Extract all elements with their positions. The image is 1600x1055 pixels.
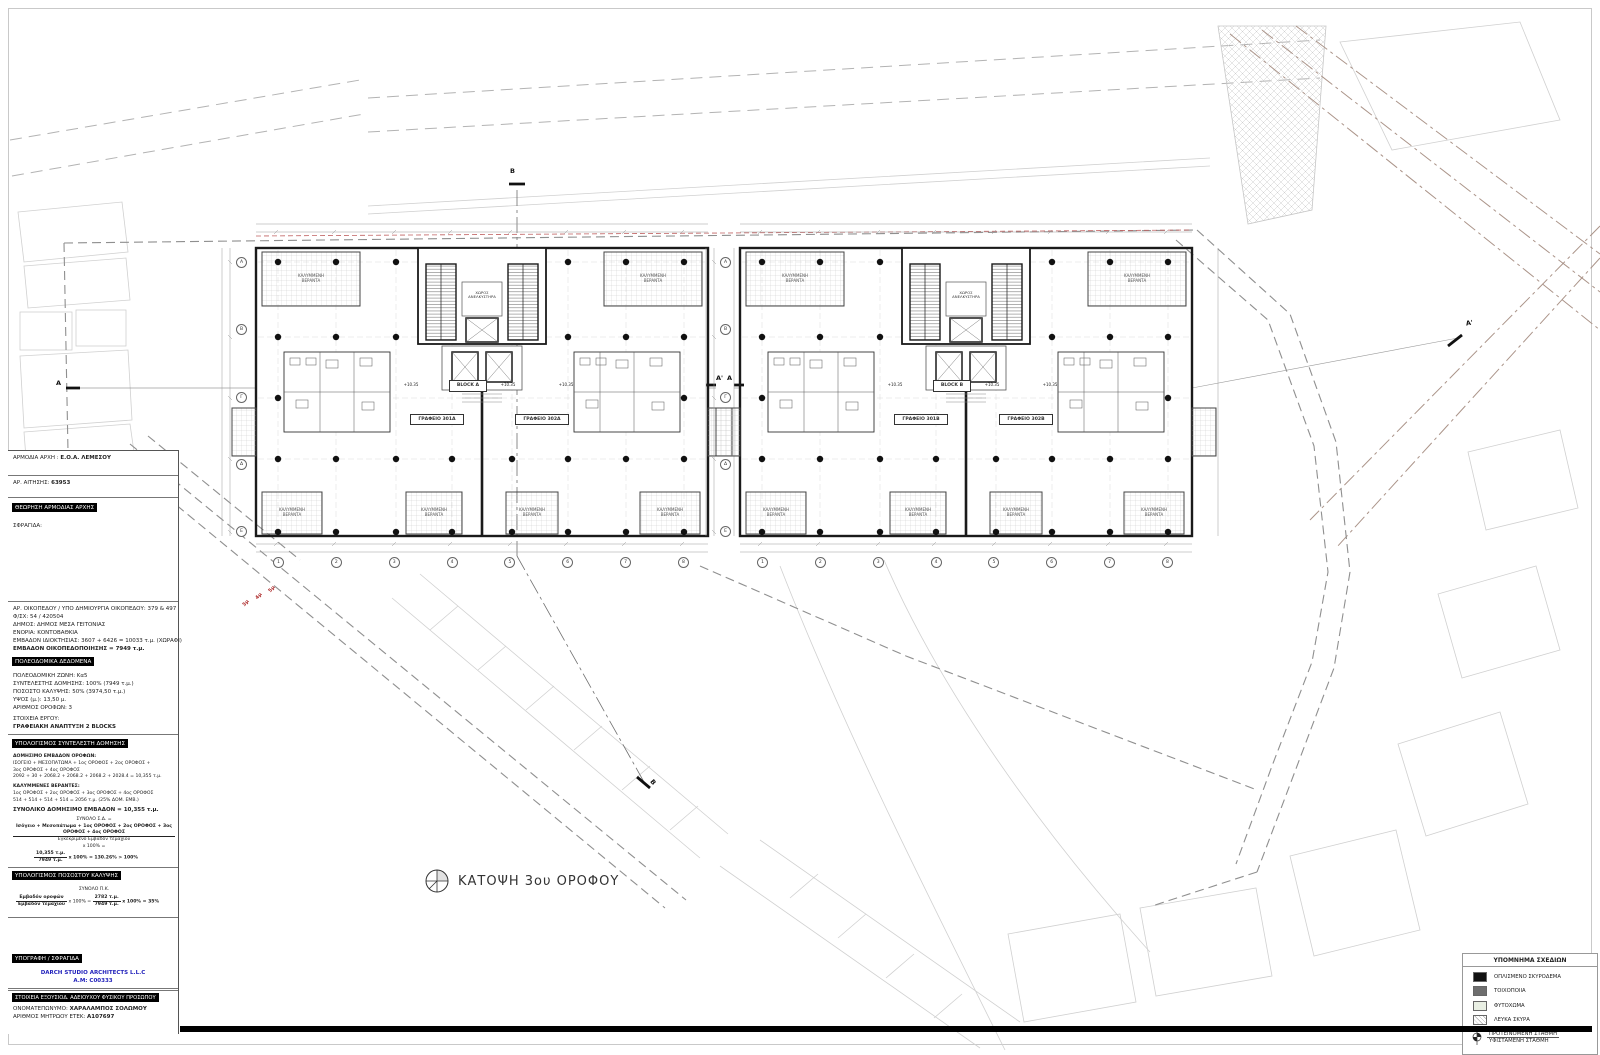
plot-line: ΑΡ. ΟΙΚΟΠΕΔΟΥ / ΥΠΟ ΔΗΜΙΟΥΡΓΙΑ ΟΙΚΟΠΕΔΟΥ… bbox=[13, 606, 175, 613]
grid-bubble: Β bbox=[236, 324, 247, 335]
far-fraction-denominator: Εγκεκριμένο Εμβαδόν τεμαχίου bbox=[13, 837, 175, 843]
drawing-sheet: ΑΡΜΟΔΙΑ ΑΡΧΗ : Ε.Ο.Α. ΛΕΜΕΣΟΥ ΑΡ. ΑΙΤΗΣΗ… bbox=[0, 0, 1600, 1053]
plot-line: ΕΜΒΑΔΟΝ ΟΙΚΟΠΕΔΟΠΟΙΗΣΗΣ = 7949 τ.μ. bbox=[13, 646, 175, 653]
licensee-header: ΣΤΟΙΧΕΙΑ ΕΞΟΥΣΙΟΔ. ΑΔΕΙΟΥΧΟΥ ΦΥΣΙΚΟΥ ΠΡΟ… bbox=[12, 993, 159, 1002]
drawing-title: ΚΑΤΟΨΗ 3ου ΟΡΟΦΟΥ bbox=[458, 874, 619, 889]
veranda-label: ΚΑΛΥΜΜΕΝΗΒΕΡΑΝΤΑ bbox=[291, 274, 331, 283]
coverage-rest: x 100% = 35% bbox=[122, 900, 159, 905]
far-line: 2092 + 30 + 2068.2 + 2068.2 + 2068.2 + 2… bbox=[13, 774, 175, 780]
grid-bubble: 4 bbox=[931, 557, 942, 568]
coverage-formula: Εμβαδόν οροφώνΕμβαδόν τεμαχίου x 100% = … bbox=[16, 895, 175, 907]
section-a-prime-marker: A' bbox=[716, 375, 723, 382]
block-a-label: BLOCK A bbox=[449, 380, 487, 392]
lift-room-label: ΧΩΡΟΣΑΝΕΛΚΥΣΤΗΡΑ bbox=[946, 291, 986, 300]
plot-line: ΕΜΒΑΔΟΝ ΙΔΙΟΚΤΗΣΙΑΣ: 3607 + 6426 = 10033… bbox=[13, 638, 175, 645]
grid-bubble: Α bbox=[720, 257, 731, 268]
application-label: ΑΡ. ΑΙΤΗΣΗΣ: bbox=[13, 480, 49, 486]
topsoil-swatch-icon bbox=[1473, 1001, 1487, 1011]
legend-item-label: ΤΟΙΧΟΠΟΙΙΑ bbox=[1494, 988, 1526, 994]
grid-bubble: 2 bbox=[815, 557, 826, 568]
grid-bubble: 6 bbox=[1046, 557, 1057, 568]
signature-header: ΥΠΟΓΡΑΦΗ / ΣΦΡΑΓΙΔΑ bbox=[12, 954, 82, 963]
section-a-marker: A bbox=[727, 375, 732, 382]
grid-bubbles-block-b: 12345678 bbox=[757, 557, 1173, 568]
plot-line: Φ/ΣΧ: 54 / 420504 bbox=[13, 614, 175, 621]
licensee-name-label: ΟΝΟΜΑΤΕΠΩΝΥΜΟ: bbox=[13, 1006, 68, 1012]
veranda-label: ΚΑΛΥΜΜΕΝΗΒΕΡΑΝΤΑ bbox=[414, 508, 454, 517]
lift-room-label: ΧΩΡΟΣΑΝΕΛΚΥΣΤΗΡΑ bbox=[462, 291, 502, 300]
legend-item: ΟΠΛΙΣΜΕΝΟ ΣΚΥΡΟΔΕΜΑ bbox=[1473, 972, 1597, 982]
licensee-reg: Α107697 bbox=[87, 1014, 114, 1020]
sd-line: ΣΥΝΟΛΟ Σ.Δ. = bbox=[13, 817, 175, 823]
architect-reg: A.M: C00333 bbox=[8, 978, 178, 985]
office-302b-label: ΓΡΑΦΕΙΟ 302Β bbox=[999, 414, 1053, 425]
far-result-num: 10,355 τ.μ. bbox=[34, 851, 67, 858]
grid-bubble: Γ bbox=[236, 392, 247, 403]
coverage-total: ΣΥΝΟΛΟ Π.Κ. bbox=[13, 887, 175, 893]
zoning-line: ΠΟΛΕΟΔΟΜΙΚΗ ΖΩΝΗ: Κα5 bbox=[13, 673, 175, 680]
total-area-line: ΣΥΝΟΛΙΚΟ ΔΟΜΗΣΙΜΟ ΕΜΒΑΔΟΝ = 10,355 τ.μ. bbox=[13, 807, 175, 814]
grid-bubble: Α bbox=[236, 257, 247, 268]
grid-bubble: Δ bbox=[720, 459, 731, 470]
plot-line: ΔΗΜΟΣ: ΔΗΜΟΣ ΜΕΣΑ ΓΕΙΤΟΝΙΑΣ bbox=[13, 622, 175, 629]
authority-value: Ε.Ο.Α. ΛΕΜΕΣΟΥ bbox=[60, 455, 111, 461]
far-header: ΥΠΟΛΟΓΙΣΜΟΣ ΣΥΝΤΕΛΕΣΤΗ ΔΟΜΗΣΗΣ bbox=[12, 739, 128, 748]
grid-bubble: 7 bbox=[620, 557, 631, 568]
coverage-num2: 2782 τ.μ. bbox=[93, 895, 121, 902]
legend-item-label: ΛΕΥΚΑ ΣΚΥΡΑ bbox=[1494, 1017, 1530, 1023]
grid-letters-block-a: ΑΒΓΔΕ bbox=[236, 257, 247, 537]
level-existing-label: ΥΦΙΣΤΑΜΕΝΗ ΣΤΑΘΜΗ bbox=[1487, 1038, 1559, 1044]
legend-header: ΥΠΟΜΝΗΜΑ ΣΧΕΔΙΩΝ bbox=[1463, 954, 1597, 967]
veranda-label: ΚΑΛΥΜΜΕΝΗΒΕΡΑΝΤΑ bbox=[650, 508, 690, 517]
verandas-line: 1ος ΟΡΟΦΟΣ + 2ος ΟΡΟΦΟΣ + 3ος ΟΡΟΦΟΣ + 4… bbox=[13, 791, 175, 797]
verandas-sub: ΚΑΛΥΜΜΕΝΕΣ ΒΕΡΑΝΤΕΣ: bbox=[13, 784, 175, 790]
concrete-swatch-icon bbox=[1473, 972, 1487, 982]
grid-bubble: Ε bbox=[236, 526, 247, 537]
architect-name: DARCH STUDIO ARCHITECTS L.L.C bbox=[8, 970, 178, 977]
level-mark: +10.35 bbox=[495, 383, 521, 388]
authority-label: ΑΡΜΟΔΙΑ ΑΡΧΗ : bbox=[13, 455, 59, 461]
licensee-reg-row: ΑΡΙΘΜΟΣ ΜΗΤΡΩΟΥ ΕΤΕΚ: Α107697 bbox=[13, 1014, 175, 1021]
grid-bubble: 8 bbox=[1162, 557, 1173, 568]
grid-bubble: 3 bbox=[389, 557, 400, 568]
legend-item: ΤΟΙΧΟΠΟΙΙΑ bbox=[1473, 986, 1597, 996]
project-name: ΓΡΑΦΕΙΑΚΗ ΑΝΑΠΤΥΞΗ 2 BLOCKS bbox=[13, 724, 175, 731]
plot-line: ΕΝΟΡΙΑ: ΚΟΝΤΟΒΑΘΚΙΑ bbox=[13, 630, 175, 637]
veranda-label: ΚΑΛΥΜΜΕΝΗΒΕΡΑΝΤΑ bbox=[775, 274, 815, 283]
level-mark: +10.35 bbox=[979, 383, 1005, 388]
far-result-row: 10,355 τ.μ.7949 τ.μ. x 100% = 130.26% > … bbox=[34, 851, 175, 863]
grid-bubble: 8 bbox=[678, 557, 689, 568]
legend-item-label: ΦΥΤΟΧΩΜΑ bbox=[1494, 1003, 1525, 1009]
project-label: ΣΤΟΙΧΕΙΑ ΕΡΓΟΥ: bbox=[13, 716, 175, 723]
grid-bubble: 2 bbox=[331, 557, 342, 568]
level-mark: +10.35 bbox=[882, 383, 908, 388]
application-no: 63953 bbox=[51, 480, 70, 486]
far-fraction-numerator: Ισόγειο + Μεσοπάτωμα + 1ος ΟΡΟΦΟΣ + 2ος … bbox=[13, 824, 175, 837]
drawing-title-symbol bbox=[426, 870, 448, 892]
far-line: 3ος ΟΡΟΦΟΣ + 4ος ΟΡΟΦΟΣ bbox=[13, 768, 175, 774]
section-a-marker: A bbox=[56, 380, 61, 387]
section-b-marker: B bbox=[510, 168, 515, 175]
office-302a-label: ΓΡΑΦΕΙΟ 302Α bbox=[515, 414, 569, 425]
legend-item: ΛΕΥΚΑ ΣΚΥΡΑ bbox=[1473, 1015, 1597, 1025]
far-line: ΙΣΟΓΕΙΟ + ΜΕΣΟΠΑΤΩΜΑ + 1ος ΟΡΟΦΟΣ + 2ος … bbox=[13, 761, 175, 767]
office-301a-label: ΓΡΑΦΕΙΟ 301Α bbox=[410, 414, 464, 425]
veranda-label: ΚΑΛΥΜΜΕΝΗΒΕΡΑΝΤΑ bbox=[756, 508, 796, 517]
coverage-den: Εμβαδόν τεμαχίου bbox=[16, 902, 67, 908]
sheet-bottom-bar bbox=[180, 1026, 1592, 1032]
title-block: ΑΡΜΟΔΙΑ ΑΡΧΗ : Ε.Ο.Α. ΛΕΜΕΣΟΥ ΑΡ. ΑΙΤΗΣΗ… bbox=[8, 450, 179, 1034]
legend-item: ΦΥΤΟΧΩΜΑ bbox=[1473, 1001, 1597, 1011]
stamp-label: ΣΦΡΑΓΙΔΑ: bbox=[13, 523, 175, 530]
grid-bubble: 3 bbox=[873, 557, 884, 568]
veranda-label: ΚΑΛΥΜΜΕΝΗΒΕΡΑΝΤΑ bbox=[1134, 508, 1174, 517]
zoning-line: ΑΡΙΘΜΟΣ ΟΡΟΦΩΝ: 3 bbox=[13, 705, 175, 712]
veranda-label: ΚΑΛΥΜΜΕΝΗΒΕΡΑΝΤΑ bbox=[1117, 274, 1157, 283]
block-b-label: BLOCK B bbox=[933, 380, 971, 392]
veranda-label: ΚΑΛΥΜΜΕΝΗΒΕΡΑΝΤΑ bbox=[512, 508, 552, 517]
application-row: ΑΡ. ΑΙΤΗΣΗΣ: 63953 bbox=[13, 480, 175, 487]
veranda-label: ΚΑΛΥΜΜΕΝΗΒΕΡΑΝΤΑ bbox=[898, 508, 938, 517]
authority-row: ΑΡΜΟΔΙΑ ΑΡΧΗ : Ε.Ο.Α. ΛΕΜΕΣΟΥ bbox=[13, 455, 175, 462]
coverage-den2: 7949 τ.μ. bbox=[93, 902, 121, 908]
crosshatch-area bbox=[1218, 26, 1326, 224]
legend: ΥΠΟΜΝΗΜΑ ΣΧΕΔΙΩΝ ΟΠΛΙΣΜΕΝΟ ΣΚΥΡΟΔΕΜΑ ΤΟΙ… bbox=[1462, 953, 1598, 1055]
masonry-swatch-icon bbox=[1473, 986, 1487, 996]
far-result-den: 7949 τ.μ. bbox=[34, 858, 67, 864]
grid-bubble: Γ bbox=[720, 392, 731, 403]
grid-bubble: 7 bbox=[1104, 557, 1115, 568]
licensee-name: ΧΑΡΑΛΑΜΠΟΣ ΣΟΛΩΜΟΥ bbox=[70, 1006, 147, 1012]
zoning-line: ΥΨΟΣ (μ.): 13,50 μ. bbox=[13, 697, 175, 704]
legend-item-label: ΟΠΛΙΣΜΕΝΟ ΣΚΥΡΟΔΕΜΑ bbox=[1494, 974, 1561, 980]
office-301b-label: ΓΡΑΦΕΙΟ 301Β bbox=[894, 414, 948, 425]
grid-bubble: 1 bbox=[273, 557, 284, 568]
zoning-header: ΠΟΛΕΟΔΟΜΙΚΑ ΔΕΔΟΜΕΝΑ bbox=[12, 657, 94, 666]
grid-bubble: 5 bbox=[504, 557, 515, 568]
grid-letters-block-b: ΑΒΓΔΕ bbox=[720, 257, 731, 537]
zoning-line: ΣΥΝΤΕΛΕΣΤΗΣ ΔΟΜΗΣΗΣ: 100% (7949 τ.μ.) bbox=[13, 681, 175, 688]
licensee-name-row: ΟΝΟΜΑΤΕΠΩΝΥΜΟ: ΧΑΡΑΛΑΜΠΟΣ ΣΟΛΩΜΟΥ bbox=[13, 1006, 175, 1013]
grid-bubble: Δ bbox=[236, 459, 247, 470]
level-mark: +10.35 bbox=[553, 383, 579, 388]
coverage-header: ΥΠΟΛΟΓΙΣΜΟΣ ΠΟΣΟΣΤΟΥ ΚΑΛΥΨΗΣ bbox=[12, 871, 121, 880]
grid-bubble: 4 bbox=[447, 557, 458, 568]
section-a-prime-marker: A' bbox=[1465, 319, 1473, 328]
veranda-label: ΚΑΛΥΜΜΕΝΗΒΕΡΑΝΤΑ bbox=[272, 508, 312, 517]
grid-bubble: 6 bbox=[562, 557, 573, 568]
far-result-rest: x 100% = 130.26% > 100% bbox=[69, 856, 138, 861]
gravel-swatch-icon bbox=[1473, 1015, 1487, 1025]
level-mark: +10.35 bbox=[398, 383, 424, 388]
coverage-mid: x 100% = bbox=[69, 900, 92, 905]
grid-bubble: Β bbox=[720, 324, 731, 335]
far-fraction-eq: x 100% = bbox=[13, 844, 175, 850]
zoning-line: ΠΟΣΟΣΤΟ ΚΑΛΥΨΗΣ: 50% (3974,50 τ.μ.) bbox=[13, 689, 175, 696]
far-sub: ΔΟΜΗΣΙΜΟ ΕΜΒΑΔΟΝ ΟΡΟΦΩΝ: bbox=[13, 754, 175, 760]
licensee-reg-label: ΑΡΙΘΜΟΣ ΜΗΤΡΩΟΥ ΕΤΕΚ: bbox=[13, 1014, 85, 1020]
grid-bubble: 1 bbox=[757, 557, 768, 568]
grid-bubble: 5 bbox=[988, 557, 999, 568]
veranda-label: ΚΑΛΥΜΜΕΝΗΒΕΡΑΝΤΑ bbox=[633, 274, 673, 283]
veranda-label: ΚΑΛΥΜΜΕΝΗΒΕΡΑΝΤΑ bbox=[996, 508, 1036, 517]
grid-bubbles-block-a: 12345678 bbox=[273, 557, 689, 568]
approval-header: ΘΕΩΡΗΣΗ ΑΡΜΟΔΙΑΣ ΑΡΧΗΣ bbox=[12, 503, 97, 512]
coverage-num: Εμβαδόν οροφών bbox=[16, 895, 67, 902]
grid-bubble: Ε bbox=[720, 526, 731, 537]
level-mark: +10.35 bbox=[1037, 383, 1063, 388]
verandas-line: 514 + 514 + 514 + 514 = 2056 τ.μ. (25% Δ… bbox=[13, 798, 175, 804]
site-roads-dashed bbox=[10, 40, 1320, 176]
